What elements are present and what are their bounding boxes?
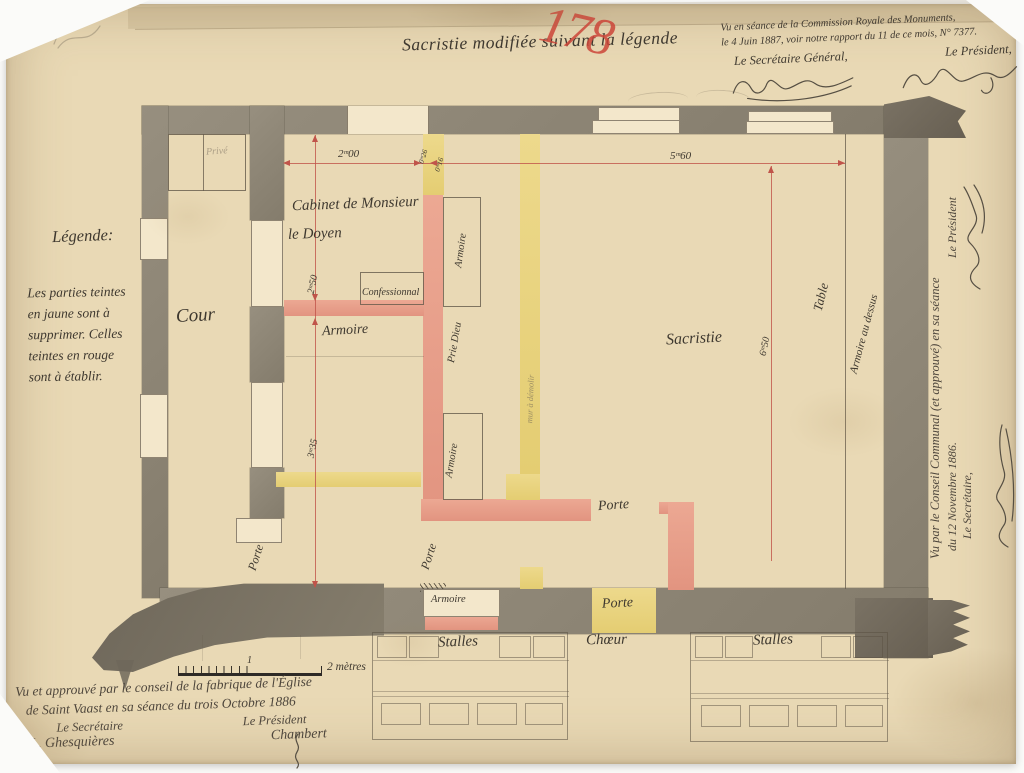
stalls-right-block [690,632,888,742]
signature-president [898,57,1020,102]
stall-seat [725,636,753,658]
window-top-2-inner [746,121,834,134]
inner-wall-opening-1 [251,220,283,307]
dim-arrow [768,166,774,173]
wall-left [142,106,168,598]
stalls-line [373,691,569,692]
red-wall-door-leg-step [659,502,668,514]
label-porte-main: Porte [597,497,629,515]
room-label-cour: Cour [175,304,215,328]
window-left-1 [140,218,168,260]
dim-arrow [283,160,290,166]
stall-seat [429,703,469,725]
wall-inner-seg-2 [250,307,284,382]
scale-label-one: 1 [247,655,252,666]
privy-divider [203,134,204,191]
commune-approval: Vu par le Conseil Communal (et approuvé)… [928,167,1022,565]
window-left-2 [140,394,168,458]
stalls-line [691,698,889,699]
scanned-plan-page: Sacristie modifiée suivant la légende 17… [0,0,1024,773]
stalls-line [373,696,569,697]
stall-seat [695,636,723,658]
commission-note: Vu en séance de la Commission Royale des… [720,9,1024,109]
stall-seat [377,636,407,658]
dim-line-horizontal [287,163,845,164]
dim-cabinet-width: 2ᵐ00 [338,148,359,160]
legend-title: Légende: [52,225,114,247]
commune-secretary-label: Le Secrétaire, [960,472,990,539]
commune-line-2: du 12 Novembre 1886. [945,442,960,551]
fabrique-approval: Vu et approuvé par le conseil de la fabr… [15,672,367,753]
stall-seat [409,636,439,658]
signature-chambert-flourish [288,732,308,770]
stalls-line [691,693,889,694]
red-wall-horizontal-bottom [421,499,591,521]
yellow-wall-horizontal [276,472,421,487]
privy-label: Privé [206,145,228,157]
stall-seat [845,705,883,727]
stall-seat [821,636,851,658]
stall-seat [701,705,741,727]
label-armoire-bottom: Armoire [431,594,466,605]
red-strip-under-armoire [425,616,498,630]
stall-seat [853,636,883,658]
dim-arrow [312,318,318,325]
stall-seat [477,703,517,725]
window-top-1-outer [598,107,680,121]
wall-right [884,106,928,658]
stall-seat [381,703,421,725]
sacristie-pencil-line [845,134,846,589]
red-wall-vertical [423,195,443,521]
signature-commune-president [960,183,990,293]
faint-tick-1 [202,635,203,661]
stall-seat [525,703,563,725]
room-label-cabinet-2: le Doyen [288,225,342,244]
window-top-1-inner [592,120,680,134]
stall-seat [533,636,565,658]
label-choeur: Chœur [586,632,627,650]
dim-arrow [838,160,845,166]
door-opening-top [347,106,429,134]
armoire-room-faint-line [286,356,424,357]
stall-seat [749,705,789,727]
yellow-small-block [520,567,543,589]
stalls-left-block [372,632,568,740]
inner-wall-opening-2 [251,382,283,468]
room-label-armoire: Armoire [322,322,369,340]
commune-president-label: Le Président [945,197,960,258]
stalls-line [691,660,889,661]
label-porte-choir: Porte [602,595,634,613]
stall-seat [797,705,837,727]
stall-seat [499,636,531,658]
dim-sacristie-width: 5ᵐ60 [670,150,691,162]
red-wall-door-leg [668,502,694,590]
dim-line-vertical-sacristie [771,166,772,561]
dim-arrow [312,135,318,142]
dim-arrow [312,581,318,588]
privy-box [168,134,246,191]
faint-tick-2 [300,635,301,659]
stalls-line [373,660,569,661]
signature-commune-secretary [990,421,1016,551]
commune-line-1: Vu par le Conseil Communal (et approuvé)… [928,167,943,559]
yellow-wall-vertical-foot [506,474,540,500]
label-confessional: Confessionnal [362,287,419,298]
wall-inner-seg-1 [250,106,284,220]
room-label-sacristie: Sacristie [666,329,723,350]
